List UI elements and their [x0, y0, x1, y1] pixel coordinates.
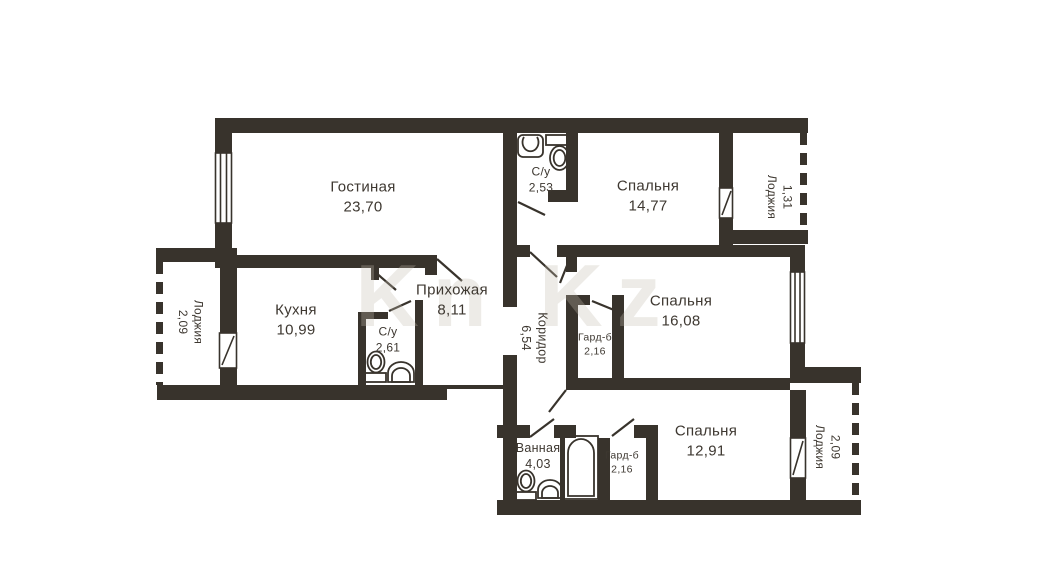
balcony-door-bedroom-12 [791, 438, 806, 478]
toilet-icon [515, 471, 536, 501]
room-label-bedroom-2: Спальня 16,08 [650, 292, 712, 331]
room-name: Спальня [650, 292, 712, 312]
room-area: 1,31 [779, 175, 795, 219]
room-area: 6,54 [518, 312, 534, 363]
room-name: Гостиная [330, 178, 395, 198]
room-name: Лоджия [190, 300, 206, 344]
room-area: 14,77 [617, 196, 679, 216]
room-label-loggia-top-right: Лоджия 1,31 [763, 175, 794, 219]
sink-icon [388, 362, 414, 382]
room-area: 2,09 [174, 300, 190, 344]
room-area: 10,99 [275, 320, 317, 340]
room-label-wardrobe-bottom: Гард-б 2,16 [605, 449, 639, 476]
room-area: 23,70 [330, 197, 395, 217]
room-name: С/у [529, 164, 554, 180]
floorplan-canvas: Kn Kz Гостиная 23,70 Кухня 10,99 Прихожа… [0, 0, 1037, 583]
room-label-bathroom: Ванная 4,03 [516, 440, 561, 473]
room-label-wc-small: С/у 2,61 [376, 324, 401, 355]
window-livingroom [216, 153, 232, 223]
room-label-bedroom-3: Спальня 12,91 [675, 422, 737, 461]
balcony-door-bedroom-14 [720, 188, 733, 218]
room-label-loggia-left: Лоджия 2,09 [174, 300, 205, 344]
watermark: Kn Kz [355, 245, 674, 347]
room-name: Ванная [516, 440, 561, 456]
room-name: Коридор [534, 312, 550, 363]
room-name: Гард-б [578, 331, 612, 345]
room-area: 2,09 [827, 425, 843, 469]
room-label-wc-top: С/у 2,53 [529, 164, 554, 195]
room-label-bedroom-1: Спальня 14,77 [617, 177, 679, 216]
room-name: Лоджия [763, 175, 779, 219]
sink-icon [518, 135, 543, 157]
room-label-wardrobe-mid: Гард-б 2,16 [578, 331, 612, 358]
room-area: 2,16 [578, 345, 612, 359]
room-name: Кухня [275, 301, 317, 321]
window-bedroom-16 [791, 272, 805, 343]
room-area: 2,61 [376, 340, 401, 356]
room-area: 16,08 [650, 311, 712, 331]
room-label-hallway: Прихожая 8,11 [416, 281, 488, 320]
sink-icon [538, 480, 562, 498]
room-name: Гард-б [605, 449, 639, 463]
room-name: Лоджия [811, 425, 827, 469]
toilet-icon [365, 352, 386, 383]
room-area: 2,53 [529, 180, 554, 196]
room-name: С/у [376, 324, 401, 340]
room-area: 8,11 [416, 300, 488, 320]
room-label-loggia-bottom-right: Лоджия 2,09 [811, 425, 842, 469]
room-name: Прихожая [416, 281, 488, 301]
room-name: Спальня [617, 177, 679, 197]
room-label-corridor: Коридор 6,54 [518, 312, 551, 363]
room-label-livingroom: Гостиная 23,70 [330, 178, 395, 217]
room-name: Спальня [675, 422, 737, 442]
room-label-kitchen: Кухня 10,99 [275, 301, 317, 340]
room-area: 2,16 [605, 463, 639, 477]
room-area: 12,91 [675, 441, 737, 461]
balcony-door-kitchen [220, 333, 237, 368]
room-area: 4,03 [516, 456, 561, 472]
bathtub-icon [564, 436, 598, 499]
